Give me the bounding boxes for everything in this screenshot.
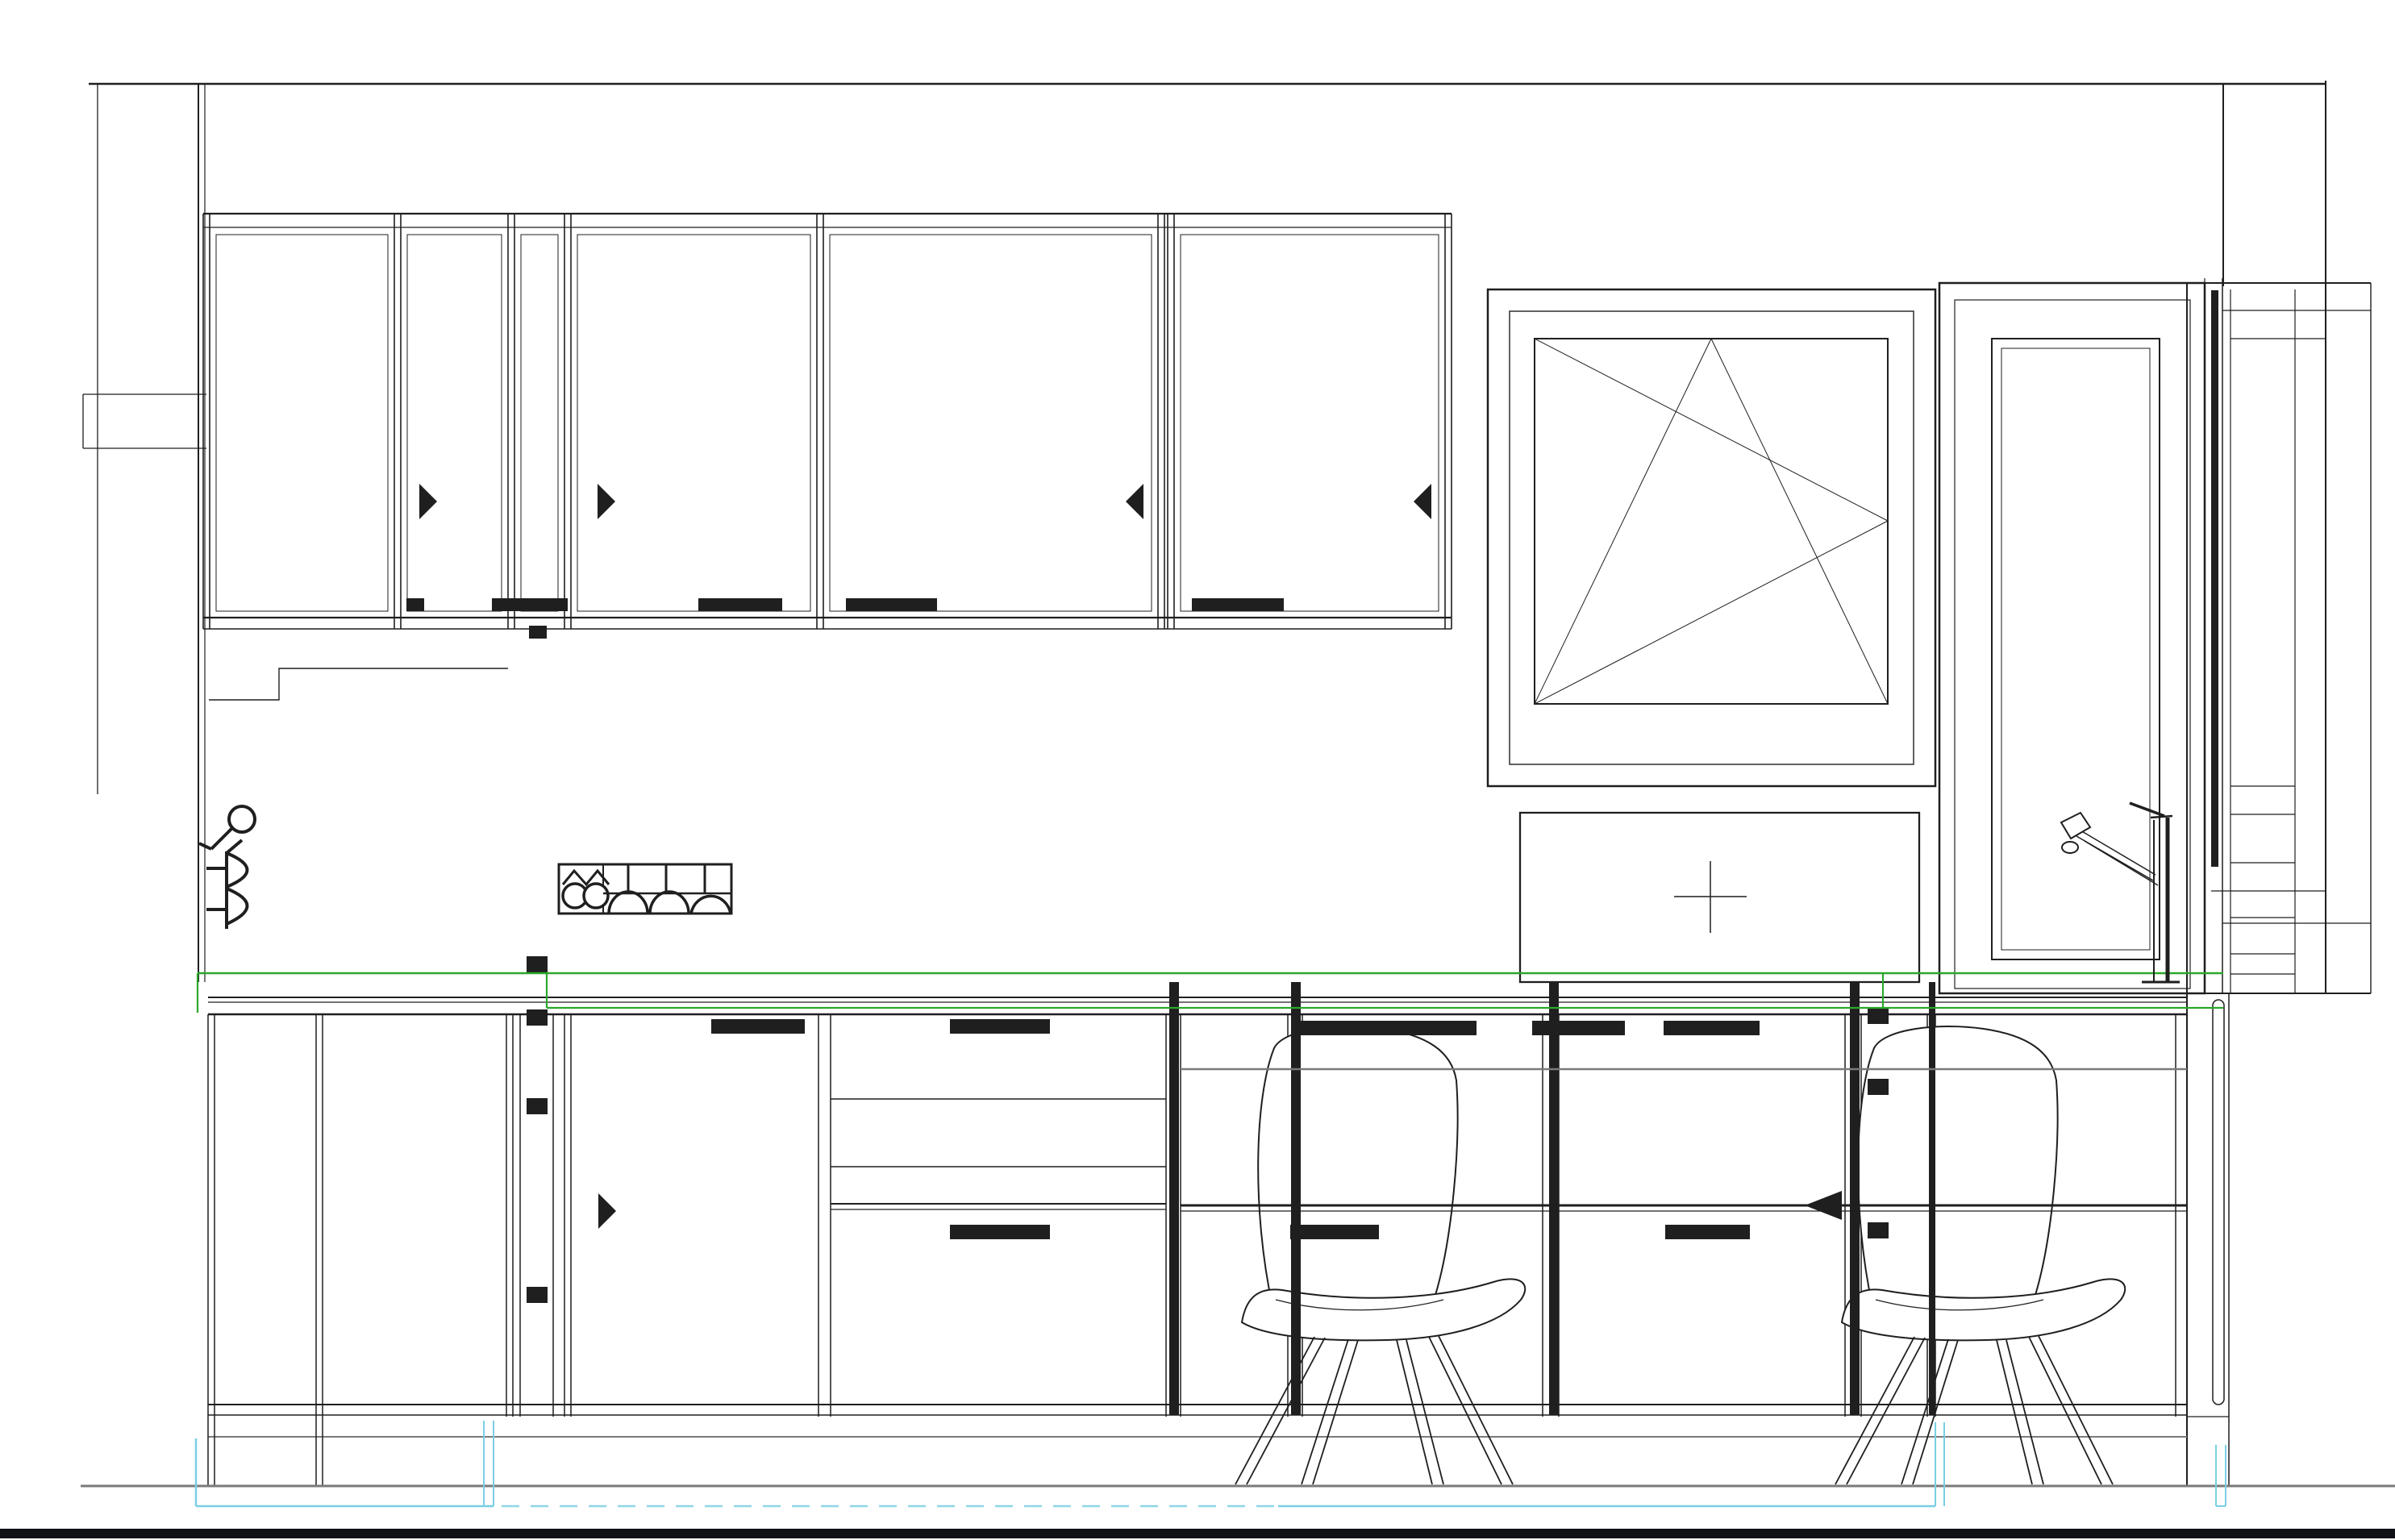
hinge-direction-marker-base	[598, 1193, 616, 1229]
cad-canvas	[0, 0, 2395, 1540]
wall-and-ceiling-lines	[83, 84, 2326, 982]
outlet-strip-symbol	[559, 864, 731, 914]
tilt-turn-window	[1488, 289, 1935, 982]
arrowhead-left-icon	[1805, 1191, 1842, 1220]
faucet	[2061, 803, 2180, 982]
switch-and-socket-symbols	[199, 806, 255, 929]
bottom-edge-band	[0, 1529, 2395, 1538]
elevation-drawing	[0, 0, 2395, 1540]
chair-1	[1235, 1026, 1525, 1484]
balcony-door	[1939, 283, 2205, 993]
opening-symbol	[1535, 339, 1888, 704]
tall-unit-pull-handle	[2213, 1000, 2224, 1405]
chair-legs	[1235, 1336, 1513, 1484]
chair-2	[1835, 1026, 2125, 1484]
wall-cabinet-run	[203, 214, 1452, 639]
window-sill-panel	[1520, 813, 1919, 982]
frame-profile-rungs	[2230, 786, 2295, 974]
floor-lines	[0, 1421, 2395, 1538]
bar-chairs	[1235, 1026, 2125, 1484]
right-wall-section	[2187, 81, 2371, 1486]
